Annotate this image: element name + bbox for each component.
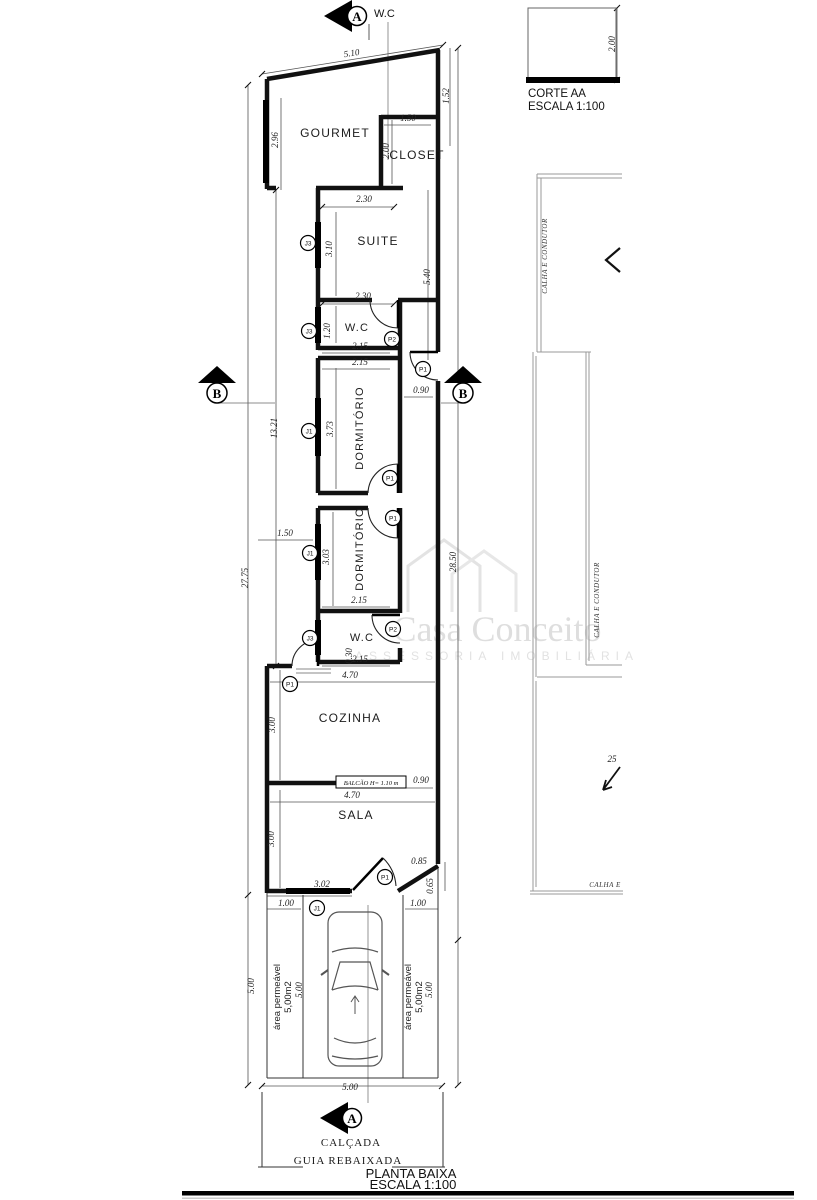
room-label: SUITE [357,234,398,248]
dimension-label: 3.10 [324,241,334,258]
dimension-label: 3.73 [325,421,335,438]
roof-plan: 25 CALHA E CONDUTOR CALHA E CONDUTOR CAL… [530,174,623,894]
watermark-house-icon [452,551,516,612]
bottom-labels: CALÇADA GUIA REBAIXADA PLANTA BAIXA ESCA… [294,1137,457,1192]
permeable-label: área permeável [403,964,414,1030]
sidewalk-label: CALÇADA [321,1137,381,1149]
dimension-label: 5.10 [343,47,361,59]
dimension-label: 3.00 [267,717,277,734]
marker-label: P1 [286,681,294,688]
dimension-label: 13.21 [269,418,279,438]
marker-label: P2 [388,336,396,343]
car-hood-line [332,948,378,952]
dimension-label: 0.65 [425,878,435,894]
room-label: DORMITÓRIO [353,507,366,591]
section-detail: CORTE AA ESCALA 1:100 [526,8,620,113]
roof-slope-arrow-icon [606,248,620,272]
dimension-label: 1.00 [410,898,426,908]
dimension-label: 4.70 [344,790,360,800]
room-label: DORMITÓRIO [353,386,366,470]
car-mirrors [321,970,389,975]
section-a-letter: A [352,9,362,24]
dimension-label: 5.00 [246,978,256,994]
marker-label: P2 [389,626,397,633]
drawing-scale: ESCALA 1:100 [370,1177,457,1192]
section-title: CORTE AA [528,88,586,100]
dimension-label: 0.90 [413,385,429,395]
dimension-label: 2.15 [352,341,368,351]
marker-label: J3 [306,328,313,335]
dimension-label: 1.00 [278,898,294,908]
marker-label: J3 [307,635,314,642]
balcao: BALCÃO H= 1.10 m [336,776,406,788]
section-lines [220,22,461,1103]
dimension-label: 0.85 [411,856,427,866]
title-block-divider [182,1191,794,1196]
section-b-letter: B [459,386,468,401]
dimension-label: 2.15 [352,357,368,367]
dimension-label: 3.02 [313,879,330,889]
permeable-label: área permeável [272,964,283,1030]
dimension-label: 2.96 [270,132,280,148]
section-a-note: W.C [374,8,395,20]
section-scale: ESCALA 1:100 [528,101,605,113]
gutter-label: CALHA E CONDUTOR [593,562,601,638]
dimension-label: 2.15 [352,654,368,664]
dimension-label: 5.00 [294,982,304,998]
marker-label: P1 [419,366,427,373]
marker-label: J1 [306,428,313,435]
marker-label: J1 [314,905,321,912]
car-trunk-line [332,1056,378,1059]
gutter-label: CALHA E [589,881,621,889]
dimension-label: 5.00 [342,1082,358,1092]
windows [266,100,350,891]
roof-slope-arrow-icon [603,767,620,790]
watermark-brand: Casa Conceito [393,609,602,649]
room-label: GOURMET [300,126,370,140]
room-label: SALA [338,808,374,822]
floor-plan-drawing: Casa Conceito ASSESSORIA IMOBILIÁRIA [0,0,817,1200]
dimension-label: 1.52 [441,88,451,104]
exterior-walls [267,50,440,893]
permeable-size: 5,00m2 [283,981,294,1013]
dimension-label: 2.15 [351,595,367,605]
car [321,912,389,1066]
marker-label: P1 [389,515,397,522]
dimension-label: 3.03 [321,549,331,566]
kitchen-step-hatch [296,669,331,673]
dimension-label: 27.75 [240,567,250,588]
dimension-label: 3.00 [266,831,276,848]
roof-slope-value: 25 [608,754,618,764]
room-label: W.C [350,632,374,644]
title-block-divider-shadow [182,1198,794,1200]
marker-label: J1 [307,550,314,557]
dimension-label: 1.50 [400,113,416,123]
watermark-house-icon [408,540,480,612]
dimension-label: 5.40 [422,269,432,285]
section-wall-outline [528,8,616,78]
dimension-label: 0.90 [413,775,429,785]
room-label: W.C [345,322,369,334]
room-labels: GOURMETCLOSETSUITEW.CDORMITÓRIODORMITÓRI… [300,126,444,822]
dimension-label: 1.20 [322,323,332,339]
section-a-letter: A [347,1111,357,1126]
car-roof-line [332,986,378,990]
gutter-label: CALHA E CONDUTOR [541,218,549,294]
balcao-label: BALCÃO H= 1.10 m [344,779,399,787]
dimension-label: 5.00 [424,982,434,998]
dimension-label: 2.00 [607,36,617,52]
dimension-label: 1.50 [277,528,293,538]
room-label: CLOSET [389,148,444,162]
car-direction-arrow [351,996,359,1014]
dimension-label: 28.50 [448,551,458,572]
room-label: COZINHA [319,711,381,725]
section-b-arrow-icon [444,366,482,383]
marker-label: J3 [305,240,312,247]
marker-label: P1 [381,874,389,881]
dimension-label: 2.30 [355,291,371,301]
walls [267,50,440,893]
section-b-letter: B [213,386,222,401]
site-lines [258,669,445,1167]
dimension-label: 4.70 [342,670,358,680]
marker-label: P1 [386,475,394,482]
section-b-arrow-icon [198,366,236,383]
floor-plan-page: Casa Conceito ASSESSORIA IMOBILIÁRIA [0,0,817,1200]
dimension-label: 2.30 [356,194,372,204]
section-slab [526,77,620,83]
dimension-labels: 5.102.961.521.502.002.303.105.402.301.20… [240,36,617,1092]
car-rear-window [334,1038,376,1043]
dimension-label: 2.00 [381,143,391,159]
